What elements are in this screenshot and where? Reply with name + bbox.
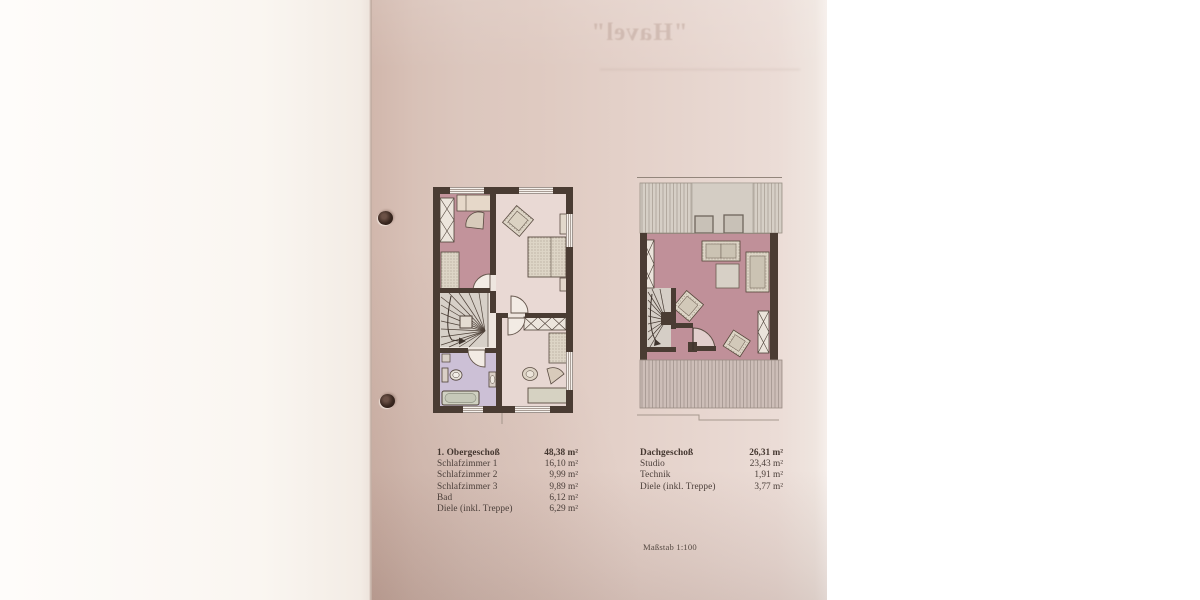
ghost-title-mirrored: "Havel"	[564, 15, 714, 51]
floor-area: 48,38 m²	[544, 448, 578, 459]
floor-plan-dachgeschoss	[633, 173, 788, 425]
punch-hole-top	[378, 211, 393, 225]
brochure-page: "Havel"	[372, 0, 827, 600]
room-area: 16,10 m²	[545, 459, 578, 470]
eave-line	[637, 415, 779, 420]
table-header: Dachgeschoß 26,31 m²	[640, 448, 783, 459]
background-left-strip	[0, 0, 372, 600]
room-area: 6,12 m²	[549, 493, 578, 504]
room-area: 6,29 m²	[549, 504, 578, 515]
area-table-obergeschoss: 1. Obergeschoß 48,38 m² Schlafzimmer 1 1…	[437, 448, 578, 515]
table-row: Bad 6,12 m²	[437, 493, 578, 504]
room-label: Schlafzimmer 1	[437, 459, 498, 470]
table-row: Schlafzimmer 3 9,89 m²	[437, 482, 578, 493]
table-header: 1. Obergeschoß 48,38 m²	[437, 448, 578, 459]
table-row: Schlafzimmer 2 9,99 m²	[437, 470, 578, 481]
scale-note: Maßstab 1:100	[643, 542, 697, 552]
table-row: Studio 23,43 m²	[640, 459, 783, 470]
floor-plan-obergeschoss	[433, 187, 573, 427]
room-area: 9,99 m²	[549, 470, 578, 481]
room-label: Schlafzimmer 2	[437, 470, 498, 481]
area-table-dachgeschoss: Dachgeschoß 26,31 m² Studio 23,43 m² Tec…	[640, 448, 783, 493]
skylight-window	[724, 215, 743, 233]
floor-plan-obergeschoss-drawing	[433, 187, 573, 427]
room-area: 3,77 m²	[754, 482, 783, 493]
table-row: Technik 1,91 m²	[640, 470, 783, 481]
room-area: 23,43 m²	[750, 459, 783, 470]
roof-band	[640, 183, 782, 233]
room-label: Schlafzimmer 3	[437, 482, 498, 493]
lower-roof-band	[640, 360, 782, 408]
room-area: 1,91 m²	[754, 470, 783, 481]
room-label: Technik	[640, 470, 671, 481]
floor-plan-dachgeschoss-drawing	[633, 173, 788, 425]
room-label: Diele (inkl. Treppe)	[437, 504, 513, 515]
table-row: Diele (inkl. Treppe) 6,29 m²	[437, 504, 578, 515]
photo-of-brochure-page: "Havel"	[0, 0, 1200, 600]
floor-area: 26,31 m²	[749, 448, 783, 459]
room-label: Studio	[640, 459, 665, 470]
ghost-rule	[600, 69, 800, 70]
room-label: Diele (inkl. Treppe)	[640, 482, 716, 493]
punch-hole-bottom	[380, 394, 395, 408]
floor-label: Dachgeschoß	[640, 448, 693, 459]
room-label: Bad	[437, 493, 452, 504]
table-row: Schlafzimmer 1 16,10 m²	[437, 459, 578, 470]
skylight-window	[695, 216, 713, 233]
floor-label: 1. Obergeschoß	[437, 448, 500, 459]
table-row: Diele (inkl. Treppe) 3,77 m²	[640, 482, 783, 493]
room-area: 9,89 m²	[549, 482, 578, 493]
